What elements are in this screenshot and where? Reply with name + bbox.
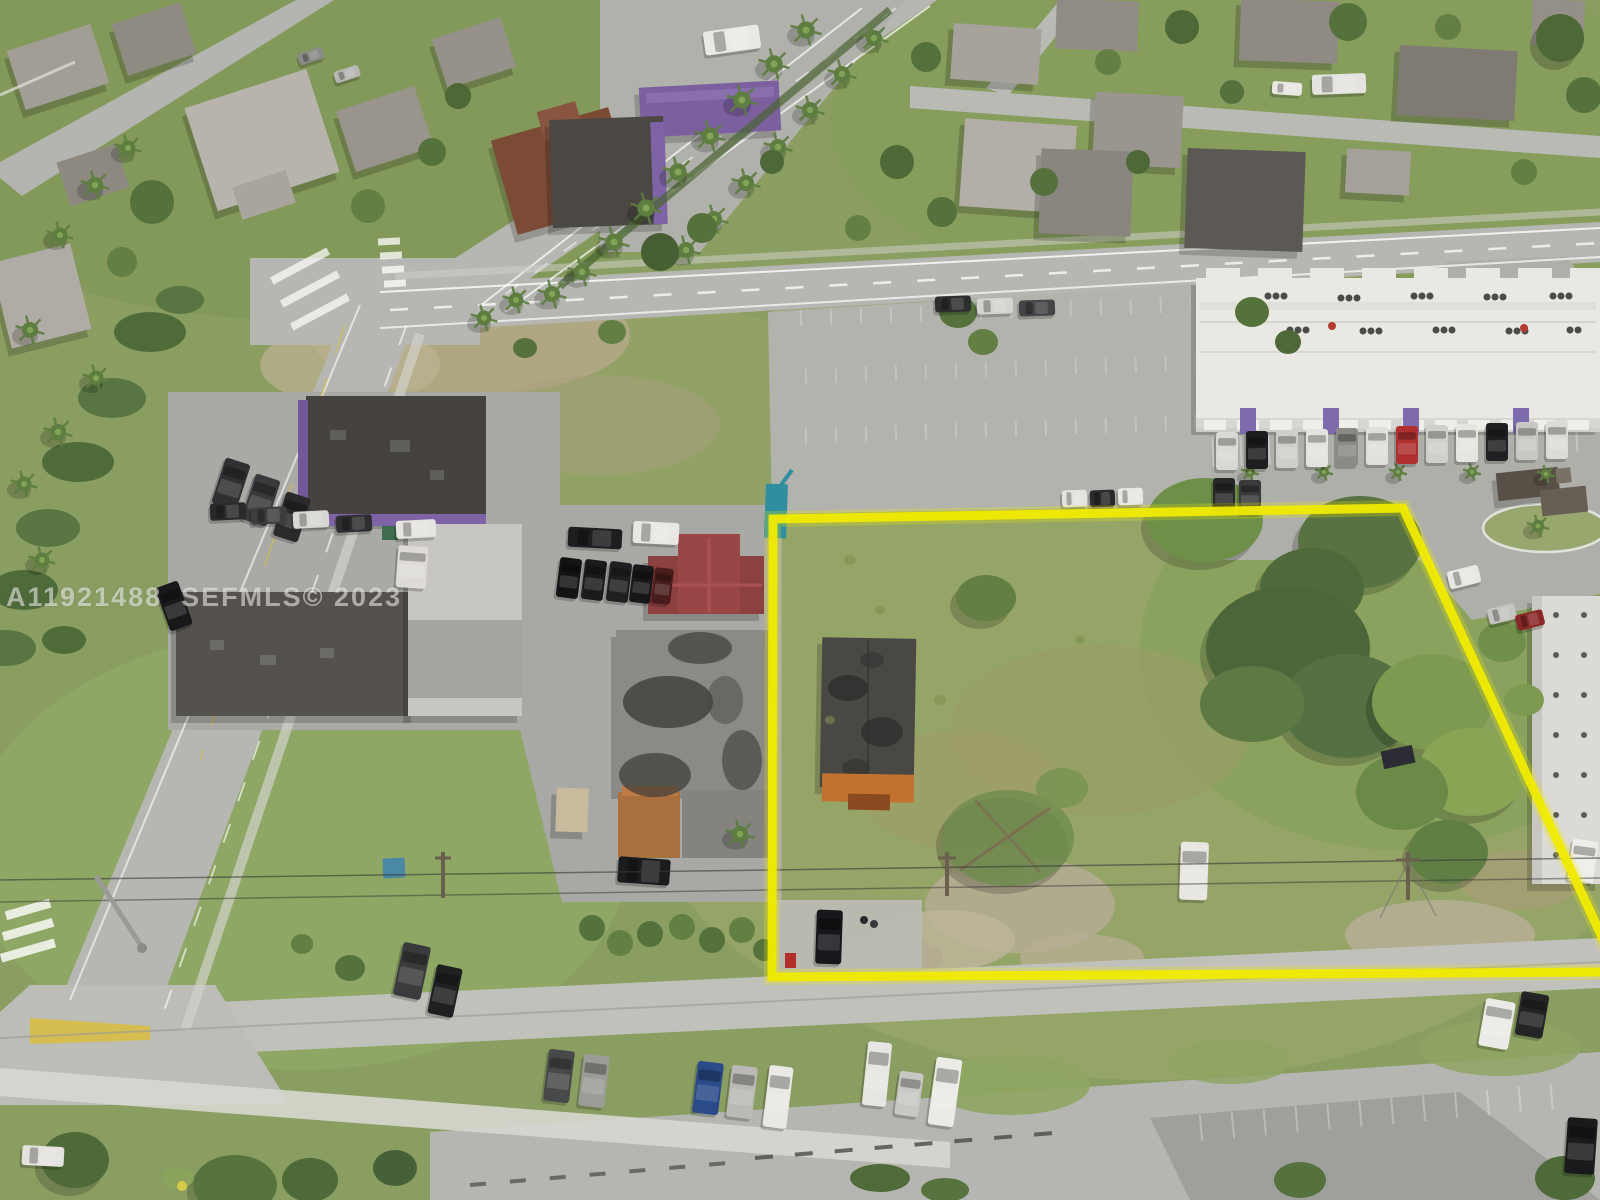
buildings-shape [1310,268,1344,282]
vegetation-shape [1274,1162,1326,1198]
vehicles-shape [1334,428,1358,469]
vegetation-shape [418,138,446,166]
vegetation-shape [42,442,114,482]
buildings-shape [1206,268,1240,282]
vegetation-shape [1329,3,1367,41]
big-dark-roof-building [1184,148,1305,252]
vehicles-shape [19,1145,64,1170]
buildings-shape [707,676,743,724]
gatehouse [1540,486,1588,517]
buildings-shape [722,730,762,790]
vegetation-shape [927,197,957,227]
buildings-shape [210,640,224,650]
white-rv [1177,841,1209,903]
vegetation-shape [1030,168,1058,196]
vegetation-shape [598,320,626,344]
vegetation-shape [911,42,941,72]
vehicles-shape [1244,431,1268,472]
buildings-shape [330,430,346,440]
vehicles-shape [1364,427,1388,468]
vehicles-shape [1454,424,1478,465]
vegetation-shape [844,555,856,565]
vehicles-shape [249,506,288,528]
buildings-shape [320,648,334,658]
parcel-tree [1200,666,1304,742]
scene-svg [0,0,1600,1200]
vehicles-shape [1214,432,1238,473]
vegetation-shape [729,917,755,943]
vegetation-shape [1126,150,1150,174]
vegetation-shape [1275,330,1301,354]
buildings-shape [860,652,884,668]
rv-trailer [1310,73,1367,98]
vegetation-shape [1170,1040,1290,1084]
vegetation-shape [845,215,871,241]
parcel-tree [1356,754,1448,830]
vegetation-shape [1536,14,1584,62]
vehicles-shape [1017,299,1056,319]
gatehouse-tower [1555,467,1571,483]
house [950,23,1042,85]
house [1345,148,1411,195]
parcel-building-porch [848,794,890,811]
vegetation-shape [968,329,998,355]
vegetation-shape [42,626,86,654]
buildings-shape [1362,268,1396,282]
buildings-shape [260,655,276,665]
vehicles-shape [565,526,622,552]
vegetation-shape [282,1158,338,1200]
vegetation-shape [291,934,313,954]
vegetation-shape [1511,159,1537,185]
vegetation-shape [107,247,137,277]
house [1055,0,1139,51]
vehicles-shape [975,297,1014,317]
parcel-corner-pad [775,900,922,980]
vegetation-shape [351,189,385,223]
church-parking-lot [768,284,1212,514]
stained-roof-building [682,790,768,858]
orange-wall-section [618,792,680,858]
buildings-shape [619,753,691,797]
buildings-shape [828,675,868,701]
vehicles-shape [1514,422,1538,463]
vehicles-shape [630,521,679,548]
vehicles-shape [394,519,437,542]
road-markings-shape [378,237,400,245]
vegetation-shape [699,927,725,953]
vegetation-shape [637,921,663,947]
vehicles-shape [1484,423,1508,464]
person [870,920,878,928]
vegetation-shape [825,716,835,724]
buildings-shape [861,717,903,747]
vegetation-shape [1235,297,1269,327]
vehicles-shape [393,545,428,592]
vehicles-shape [1304,429,1328,470]
road-markings-shape [384,279,406,287]
vehicles-shape [334,514,373,536]
vegetation-shape [850,1164,910,1192]
vegetation-shape [513,338,537,358]
vehicles-shape [1562,1117,1598,1178]
buildings-shape [1258,268,1292,282]
house [1239,0,1339,64]
aerial-listing-photo: A11921488 SEFMLS© 2023 [0,0,1600,1200]
vegetation-shape [1095,49,1121,75]
infrastructure-shape [137,943,147,953]
vehicles-shape [1274,430,1298,471]
vegetation-shape [445,83,471,109]
buildings-shape [1328,322,1336,330]
vegetation-shape [956,575,1016,621]
vegetation-shape [641,233,679,271]
vegetation-shape [373,1150,417,1186]
vegetation-shape [114,312,186,352]
vegetation-shape [579,915,605,941]
vegetation-shape [934,695,946,705]
red-bike [785,953,796,968]
vegetation-shape [1165,10,1199,44]
vegetation-shape [1075,636,1085,644]
vegetation-shape [156,286,204,314]
vegetation-shape [687,213,717,243]
house [1396,45,1518,121]
vehicles-shape [813,909,843,967]
vehicles-shape [208,502,247,524]
vehicles-shape [1394,426,1418,467]
vegetation-shape [177,1181,187,1191]
buildings-shape [1518,268,1552,282]
vegetation-shape [880,145,914,179]
buildings-shape [430,470,444,480]
vegetation-shape [607,930,633,956]
vehicles-shape [1544,421,1568,462]
purple-building-roof [306,396,486,522]
buildings-shape [390,440,410,452]
buildings-shape [623,676,713,728]
vegetation-shape [1435,14,1461,40]
vegetation-shape [16,509,80,547]
vegetation-shape [1504,684,1544,716]
vegetation-shape [130,180,174,224]
buildings-shape [1532,596,1542,884]
vegetation-shape [760,150,784,174]
apartment-purple-band [1240,408,1256,434]
vegetation-shape [1036,768,1088,808]
shed [555,787,589,832]
vegetation-shape [875,606,885,614]
buildings-shape [668,632,732,664]
road-markings-shape [380,251,402,259]
buildings-shape [1466,268,1500,282]
strip-mall-metal-roof [408,620,522,698]
vegetation-shape [669,914,695,940]
vehicles-shape [291,510,330,532]
buildings-shape [1414,268,1448,282]
vehicles-shape [1269,81,1302,99]
vegetation-shape [1220,80,1244,104]
parcel-tree [1408,820,1488,884]
person [860,916,868,924]
vehicles-shape [933,295,972,315]
strip-mall-dark-roof [176,592,416,716]
buildings-shape [1570,268,1600,282]
vehicles-shape [1424,425,1448,466]
vegetation-shape [335,955,365,981]
buildings-shape [1520,324,1528,332]
